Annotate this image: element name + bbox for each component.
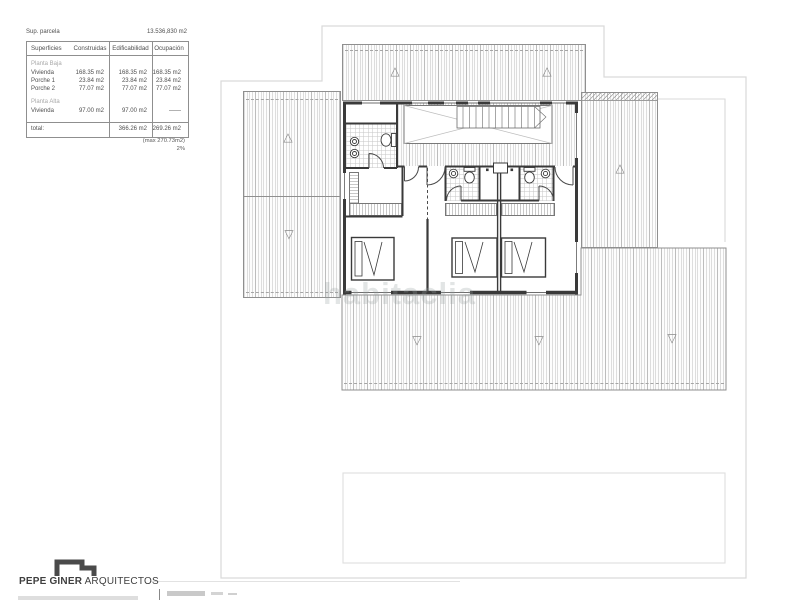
cell: ——: [152, 108, 186, 115]
door-bedroom-right: [555, 167, 573, 186]
col-header: Ocupación: [152, 45, 186, 52]
cell: Porche 2: [29, 86, 71, 93]
toilet-icon: [465, 172, 475, 183]
door-main-bath: [369, 154, 384, 169]
brand-regular: ARQUITECTOS: [82, 576, 159, 587]
table-row: Vivienda 168.35 m2 168.35 m2 168.35 m2: [29, 70, 186, 77]
titleblock-rule: [150, 581, 460, 582]
cutoff-text-bar: [228, 593, 237, 595]
cell: Vivienda: [29, 70, 71, 77]
cell: 168.35 m2: [152, 70, 186, 77]
door-hall: [405, 167, 419, 182]
stair-void: [404, 106, 552, 144]
duct-box: [494, 163, 508, 173]
cell: 77.07 m2: [71, 86, 109, 93]
cell: Porche 1: [29, 78, 71, 85]
table-total-row: total: 366.26 m2 269.26 m2: [29, 126, 186, 133]
cutoff-text-bar: [167, 591, 205, 596]
brand-name: PEPE GINER ARQUITECTOS: [19, 576, 159, 587]
door-bath-right: [539, 186, 554, 201]
table-row: Porche 2 77.07 m2 77.07 m2 77.07 m2: [29, 86, 186, 93]
col-header: Edificabilidad: [109, 45, 152, 52]
party-wall: [498, 167, 501, 293]
parcel-value: 13.536,830 m2: [147, 29, 187, 35]
cell: 168.35 m2: [109, 70, 152, 77]
cell: 269.26 m2: [152, 126, 186, 133]
footnote: (max 270.73m2): [26, 138, 185, 144]
titleblock-divider: [159, 589, 160, 600]
footnote: 2%: [26, 146, 185, 152]
slope-arrow-down-icon: ▽: [284, 228, 293, 240]
slope-arrow-up-icon: △: [542, 65, 551, 77]
cell: Vivienda: [29, 108, 71, 115]
cell: [71, 126, 109, 133]
table-header-row: Superficies Construidas Edificabilidad O…: [29, 45, 186, 52]
cell: 77.07 m2: [152, 86, 186, 93]
section-title: Planta Baja: [31, 61, 62, 67]
architect-logo-icon: [54, 559, 98, 577]
cell: 366.26 m2: [109, 126, 152, 133]
slope-arrow-up-icon: △: [615, 162, 624, 174]
slope-arrow-down-icon: ▽: [412, 334, 421, 346]
slope-arrow-up-icon: △: [283, 131, 292, 143]
cell: 97.00 m2: [71, 108, 109, 115]
cutoff-text-bar: [211, 592, 223, 595]
section-title: Planta Alta: [31, 99, 60, 105]
watermark: habitaclia: [323, 276, 476, 312]
parcel-label: Sup. parcela: [26, 29, 60, 35]
slope-arrow-down-icon: ▽: [667, 332, 676, 344]
cell: 97.00 m2: [109, 108, 152, 115]
surfaces-table: Superficies Construidas Edificabilidad O…: [26, 41, 189, 138]
slope-arrow-up-icon: △: [390, 65, 399, 77]
cutoff-text-bar: [18, 596, 138, 600]
cell: 23.84 m2: [71, 78, 109, 85]
cell: 23.84 m2: [152, 78, 186, 85]
cell: total:: [29, 126, 71, 133]
col-header: Superficies: [29, 45, 71, 52]
toilet-icon: [381, 134, 391, 146]
toilet-icon: [525, 172, 535, 183]
table-row: Porche 1 23.84 m2 23.84 m2 23.84 m2: [29, 78, 186, 85]
table-total-rule: [27, 122, 188, 123]
bed: [452, 238, 497, 277]
brand-bold: PEPE GINER: [19, 576, 82, 587]
door-bedroom-mid: [427, 167, 445, 186]
bed: [502, 238, 546, 277]
table-header-rule: [27, 55, 188, 56]
bed: [352, 238, 395, 281]
cell: 23.84 m2: [109, 78, 152, 85]
table-row: Vivienda 97.00 m2 97.00 m2 ——: [29, 108, 186, 115]
cell: 168.35 m2: [71, 70, 109, 77]
door-bath-left: [447, 186, 462, 201]
drawing-sheet: △ △ △ ▽ △ ▽ ▽ ▽ habitaclia Sup. parcela …: [0, 0, 786, 600]
col-header: Construidas: [71, 45, 109, 52]
slope-arrow-down-icon: ▽: [534, 334, 543, 346]
cell: 77.07 m2: [109, 86, 152, 93]
floor-plan: [330, 88, 590, 308]
beds: [352, 238, 546, 281]
parcel-surface-line: Sup. parcela 13.536,830 m2: [26, 29, 187, 35]
